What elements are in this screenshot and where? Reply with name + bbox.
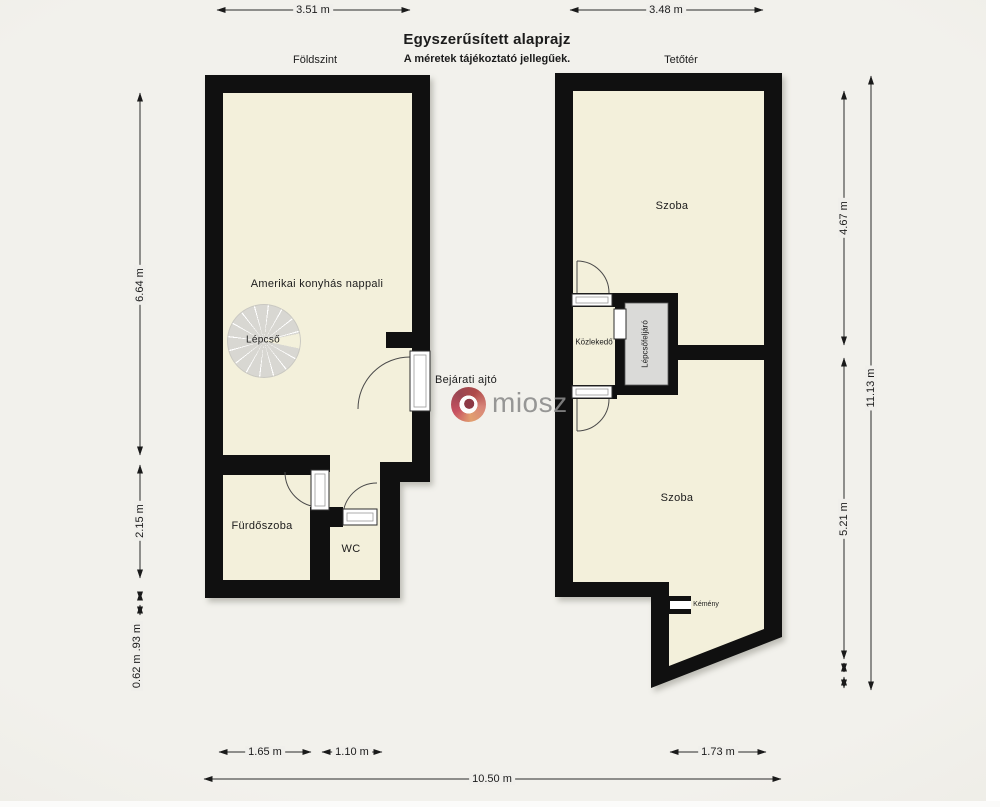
attic-label: Tetőtér (664, 54, 698, 66)
room-label-attic-room-bottom: Szoba (661, 492, 694, 504)
room-label-stair-landing: Lépcsőfeljáró (642, 320, 651, 368)
dimension-label: 6.64 m (134, 265, 146, 305)
dimension-label: 10.50 m (469, 773, 515, 785)
room-label-attic-room-top: Szoba (656, 200, 689, 212)
dimension-label: 11.13 m (865, 366, 877, 411)
room-label-living-room: Amerikai konyhás nappali (251, 278, 384, 290)
room-label-hallway: Közlekedő (575, 339, 612, 348)
room-label-stairs: Lépcső (246, 335, 280, 346)
dimension-label: 1.65 m (245, 746, 285, 758)
chimney (665, 596, 691, 614)
dimension-label: 1.10 m (332, 746, 372, 758)
watermark-text: miosz (492, 388, 568, 418)
page-subtitle: A méretek tájékoztató jellegűek. (404, 53, 571, 65)
entrance-door-label: Bejárati ajtó (435, 374, 497, 386)
attic-floor-plan (555, 73, 782, 688)
dimension-label: 3.48 m (646, 4, 686, 16)
dimension-label: 1.73 m (698, 746, 738, 758)
dimension-label: 3.51 m (293, 4, 333, 16)
room-label-bathroom: Fürdőszoba (231, 520, 292, 532)
room-label-chimney: Kémény (693, 601, 719, 609)
bottom-edge-strip (0, 801, 1000, 807)
dimension-label: 5.21 m (838, 499, 850, 539)
page-title: Egyszerűsített alaprajz (403, 32, 570, 49)
right-edge-strip (986, 0, 1000, 807)
dimension-label: 2.15 m (134, 501, 146, 541)
miosz-logo-icon (451, 387, 486, 422)
room-label-wc: WC (342, 543, 361, 555)
dimension-label: 0.62 m .93 m (131, 621, 143, 691)
dimension-label: 4.67 m (838, 198, 850, 238)
ground-floor-label: Földszint (293, 54, 337, 66)
